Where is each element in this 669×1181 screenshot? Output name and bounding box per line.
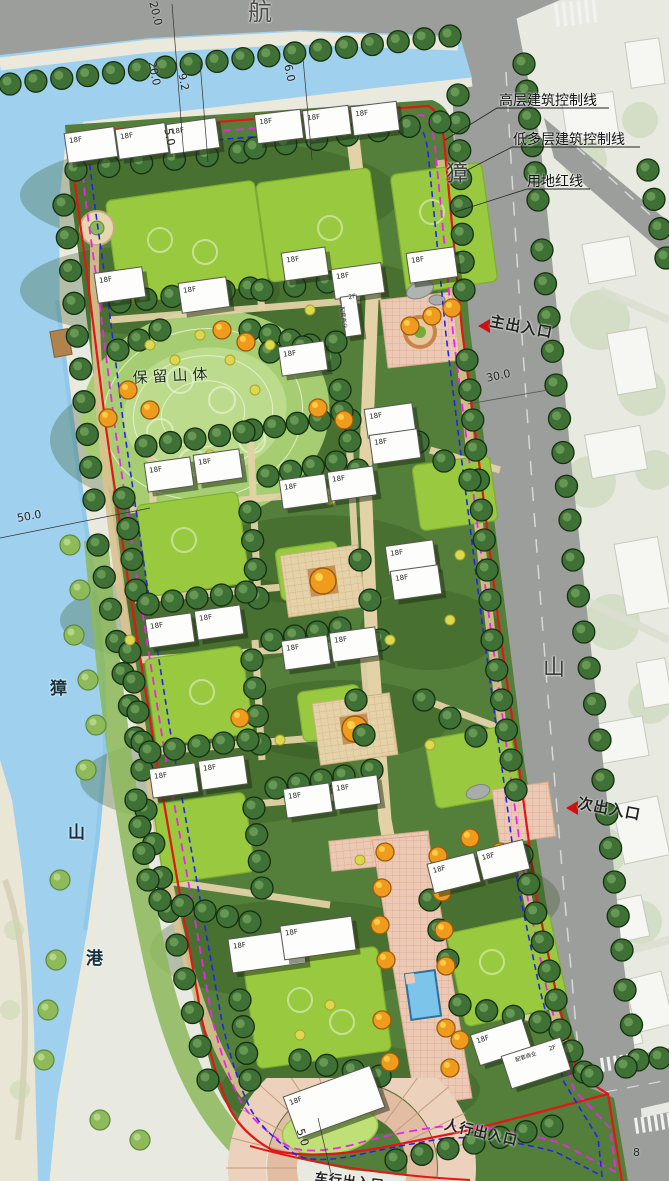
building: 18F (149, 762, 203, 803)
building: 18F (144, 456, 198, 497)
building: 18F (166, 117, 224, 159)
building: 18F (406, 246, 462, 288)
master-plan-drawing: 18F18F18F18F18F18F18F18F18F18F18F18F18F1… (0, 0, 669, 1181)
site-plan: 18F18F18F18F18F18F18F18F18F18F18F18F18F1… (0, 0, 669, 1181)
building: 18F (115, 122, 173, 164)
building: 18F (64, 126, 122, 168)
building: 18F (329, 626, 383, 667)
building: 18F (369, 428, 425, 469)
building: 18F (283, 782, 337, 823)
building: 18F (254, 109, 308, 149)
building: 18F (94, 266, 150, 308)
building: 18F (194, 604, 248, 645)
building: 18F (145, 612, 199, 653)
building-floor-label: 18F (259, 117, 273, 127)
building-floor-label: 18F (355, 109, 369, 119)
building: 18F (390, 564, 446, 605)
building: 18F (327, 465, 381, 506)
building: 18F (193, 448, 247, 489)
building: 18F (281, 247, 333, 286)
building: 18F (331, 774, 385, 815)
building: 18F (278, 340, 332, 381)
building: 18F (178, 276, 234, 318)
building-floor-label: 18F (307, 113, 321, 123)
building: 18F (198, 754, 252, 795)
building: 18F (279, 473, 333, 514)
building: 18F (350, 101, 404, 141)
building: 18F (281, 634, 335, 675)
